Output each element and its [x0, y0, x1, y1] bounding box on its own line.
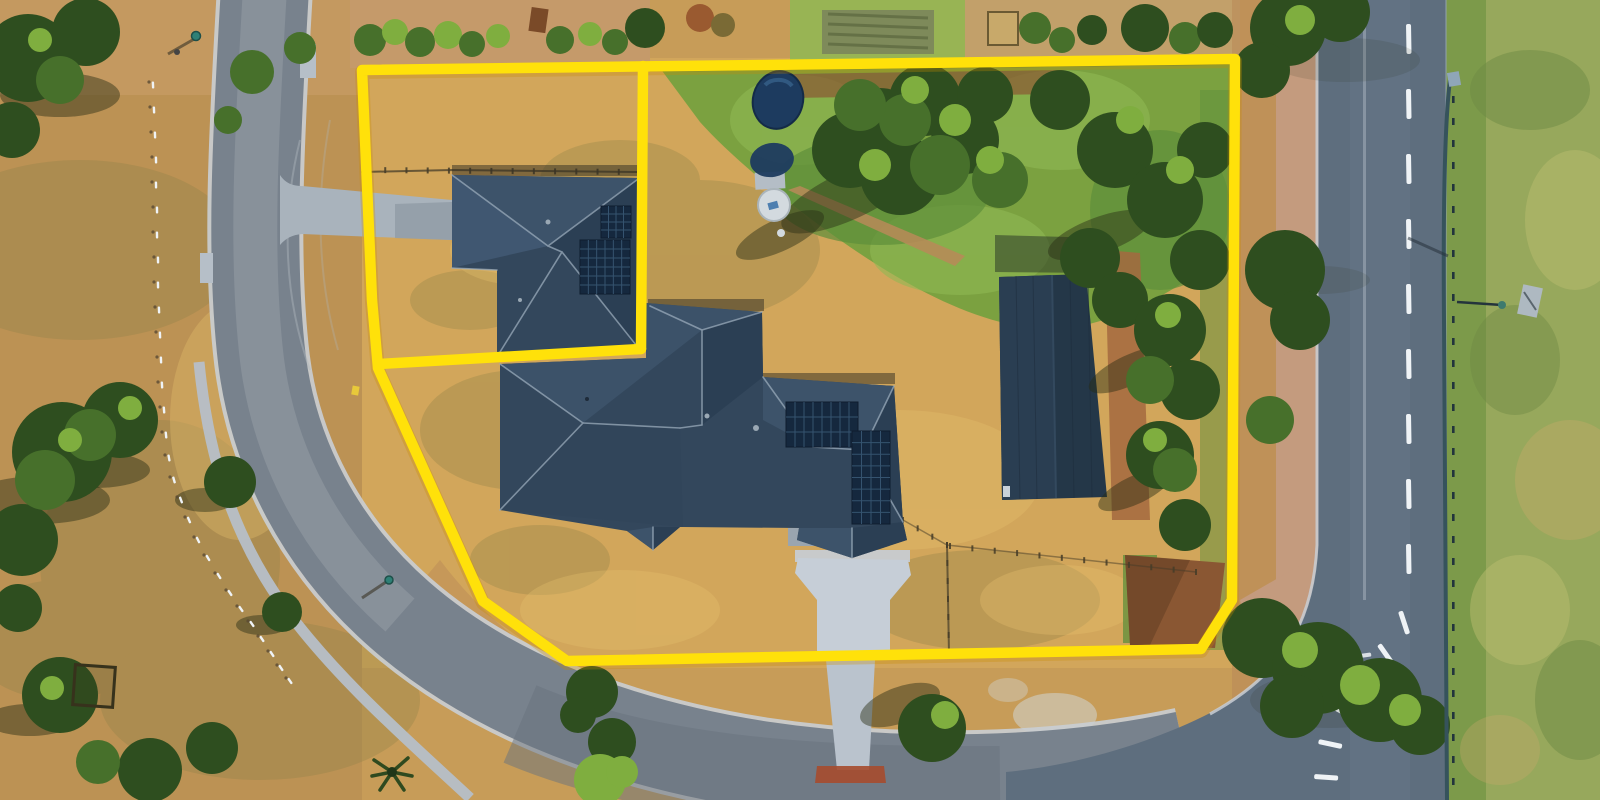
bare-patch-small	[988, 678, 1028, 702]
roof-vent	[753, 425, 759, 431]
aerial-scene	[0, 0, 1600, 800]
upper-driveway-shade	[395, 202, 452, 240]
north-eave-shadow	[452, 165, 640, 176]
roof-vent	[546, 220, 551, 225]
shed-corner-panel	[1003, 486, 1010, 497]
picnic-enclosure	[73, 665, 116, 708]
boundary-divider-vertical	[641, 66, 643, 349]
roof-vent-2	[518, 298, 522, 302]
aerial-photo	[0, 0, 1600, 800]
garden-shed	[988, 12, 1018, 45]
lane-dashes	[1406, 24, 1412, 574]
picnic-bench	[528, 7, 548, 33]
shed-roof-west-plane	[999, 275, 1056, 500]
roof-vent-2	[705, 414, 710, 419]
rail-end-plate	[1447, 71, 1461, 87]
small-tank	[777, 229, 785, 237]
lane-line-faint	[1363, 0, 1366, 600]
red-gravel-crossing	[815, 766, 886, 783]
kerb-ramp-west	[200, 253, 213, 283]
roof-dark-vent	[585, 397, 589, 401]
